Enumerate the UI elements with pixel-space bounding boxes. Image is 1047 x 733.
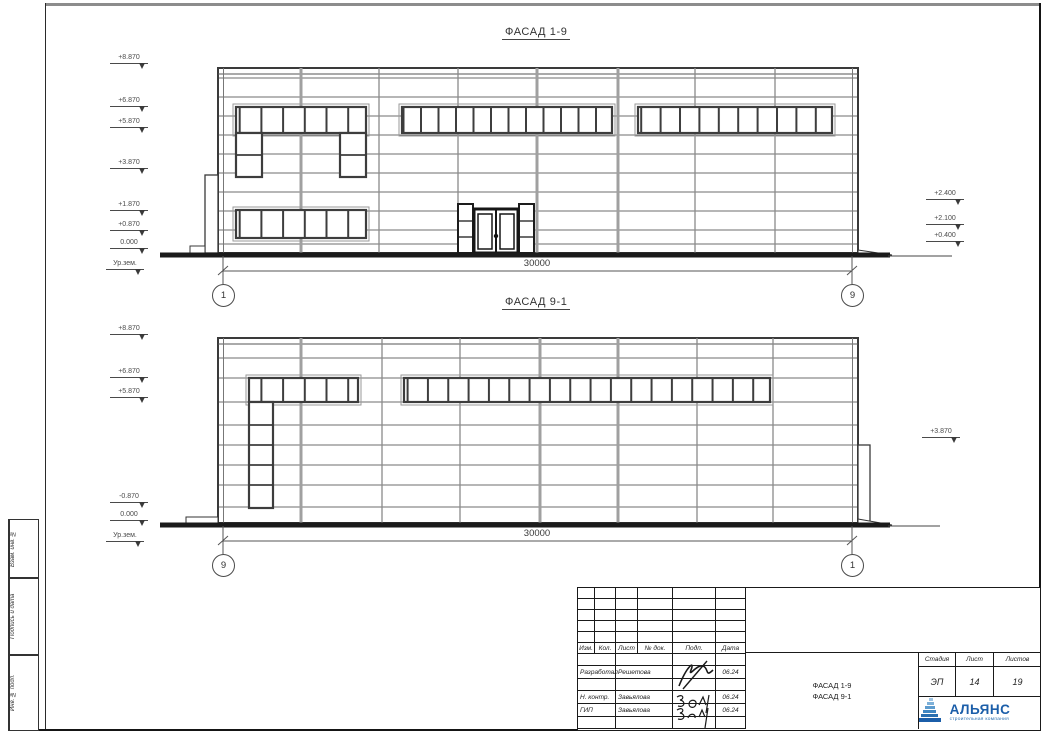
title-block-doc-title: ФАСАД 1-9 ФАСАД 9-1 (746, 653, 919, 729)
window-strip-mid (399, 104, 615, 136)
col-header: Изм. (578, 643, 595, 654)
title-block: Изм. Кол. Лист № док. Подп. Дата Разрабо… (577, 587, 1041, 731)
elevation-mark: +5.870 (110, 387, 148, 398)
logo-name: АЛЬЯНС (950, 704, 1011, 716)
elevation-mark: +6.870 (110, 96, 148, 107)
window-strip-right (635, 104, 835, 136)
window-strip-lower (233, 207, 369, 241)
stage-header: Стадия (919, 653, 956, 667)
left-step (186, 517, 218, 523)
doc-title-line: ФАСАД 1-9 (813, 680, 852, 691)
facade-9-1-drawing (160, 338, 940, 554)
sheets-total: 19 (994, 667, 1041, 697)
stamp-label: Взам. инв. № (9, 520, 25, 577)
elevation-mark: +1.870 (110, 200, 148, 211)
logo-pyramid-icon (919, 697, 943, 723)
dimension-label: 30000 (516, 528, 558, 539)
elevation-mark: +2.100 (926, 214, 964, 225)
stamp-label: Подпись и дата (9, 579, 25, 654)
facade-9-1-title: ФАСАД 9-1 (502, 296, 570, 310)
title-block-doc-number (746, 588, 1041, 653)
stamp-cell-inv: Инв. № подл. (8, 655, 39, 731)
date-cell: 06.24 (716, 666, 746, 679)
facade-1-9-title: ФАСАД 1-9 (502, 26, 570, 40)
sheets-header: Листов (994, 653, 1041, 667)
axis-bubble: 1 (841, 554, 864, 577)
elevation-mark: Ур.зем. (106, 531, 144, 542)
right-annex (858, 445, 870, 523)
signature-cell (673, 704, 716, 717)
drawing-sheet: ФАСАД 1-9 ФАСАД 9-1 +8.870 +6.870 +5.870… (0, 0, 1047, 733)
dimension-label: 30000 (516, 258, 558, 269)
axis-bubble: 1 (212, 284, 235, 307)
elevation-mark: +5.870 (110, 117, 148, 128)
elevation-mark: +8.870 (110, 324, 148, 335)
col-header: Кол. (595, 643, 616, 654)
name-cell: Завьялова (616, 691, 673, 704)
role-cell: Н. контр. (578, 691, 616, 704)
elevation-mark: +3.870 (110, 158, 148, 169)
axis-bubble: 9 (212, 554, 235, 577)
stamp-cell-podpis: Подпись и дата (8, 578, 39, 655)
elevation-mark: 0.000 (110, 238, 148, 249)
elevation-mark: +0.400 (926, 231, 964, 242)
col-header: № док. (638, 643, 673, 654)
elevation-mark: Ур.зем. (106, 259, 144, 270)
date-cell: 06.24 (716, 704, 746, 717)
stamp-label: Инв. № подл. (9, 656, 25, 730)
elevation-mark: +8.870 (110, 53, 148, 64)
elevation-mark: +6.870 (110, 367, 148, 378)
col-header: Дата (716, 643, 746, 654)
doc-title-line: ФАСАД 9-1 (813, 691, 852, 702)
logo-tagline: строительная компания (950, 717, 1011, 722)
sheet-frame-left (45, 3, 46, 731)
date-cell: 06.24 (716, 691, 746, 704)
sheet-header: Лист (956, 653, 994, 667)
window-strip-long (401, 375, 773, 405)
sheet-frame-top (45, 3, 1041, 6)
entrance-door (458, 204, 534, 253)
col-header: Лист (616, 643, 638, 654)
stage-sheet-values: ЭП 14 19 (919, 667, 1041, 697)
facade-1-9-drawing (160, 68, 952, 284)
left-pilaster (205, 175, 218, 253)
signature-cell (673, 666, 716, 679)
sheet-number: 14 (956, 667, 994, 697)
signature-cell (673, 691, 716, 704)
stamp-cell-vzam: Взам. инв. № (8, 519, 39, 578)
elevation-mark: 0.000 (110, 510, 148, 521)
col-header: Подп. (673, 643, 716, 654)
title-block-revision-table: Изм. Кол. Лист № док. Подп. Дата Разрабо… (578, 588, 746, 729)
name-cell: Завьялова (616, 704, 673, 717)
company-logo: АЛЬЯНС строительная компания (919, 697, 1041, 729)
elevation-mark: -0.870 (110, 492, 148, 503)
elevation-mark: +3.870 (922, 427, 960, 438)
stage-value: ЭП (919, 667, 956, 697)
stage-sheet-headers: Стадия Лист Листов (919, 653, 1041, 667)
role-cell: Разработал (578, 666, 616, 679)
elevation-mark: +2.400 (926, 189, 964, 200)
left-step (190, 246, 205, 253)
elevation-mark: +0.870 (110, 220, 148, 231)
role-cell: ГИП (578, 704, 616, 717)
name-cell: Решетова (616, 666, 673, 679)
axis-bubble: 9 (841, 284, 864, 307)
